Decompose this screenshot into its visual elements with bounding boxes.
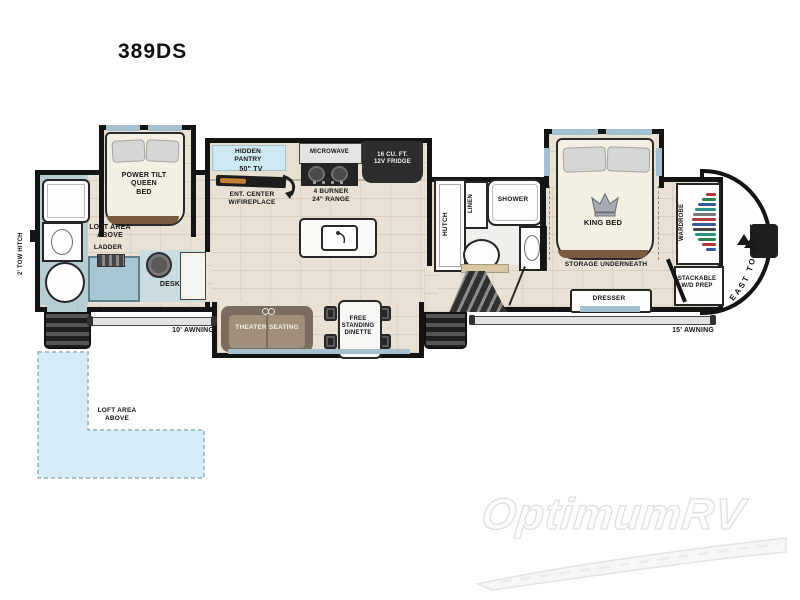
king-slide-window-top-left — [552, 129, 598, 135]
mid-entry-steps — [424, 312, 467, 349]
slide-travel-dash-right — [658, 186, 659, 260]
ladder-graphic — [97, 254, 125, 267]
king-bed-foot — [558, 250, 648, 258]
king-slide-window-top-right — [606, 129, 652, 135]
microwave-label: MICROWAVE — [300, 149, 359, 156]
road-swoosh — [470, 532, 792, 592]
faucet-icon — [334, 229, 350, 245]
svg-text:EAST TO WEST: EAST TO WEST — [728, 221, 759, 303]
front-sink-bowl — [51, 229, 73, 255]
burner-right — [331, 166, 348, 182]
wardrobe-label: WARDROBE — [679, 192, 686, 252]
range-cooktop — [301, 163, 358, 186]
living-slide-window — [228, 349, 410, 354]
queen-bed-label: POWER TILT QUEEN BED — [112, 172, 176, 197]
hutch-cabinet — [434, 179, 466, 272]
range-knobs — [313, 181, 347, 184]
pantry-label: HIDDEN PANTRY — [214, 148, 282, 164]
desk-surface — [180, 252, 206, 300]
queen-pillow-right — [145, 139, 179, 163]
rear-awning-label: 15' AWNING — [660, 327, 714, 335]
slide-travel-dash-left — [549, 186, 550, 260]
dinette-chair-1 — [324, 306, 337, 321]
front-shower — [42, 179, 90, 223]
ladder-label: LADDER — [86, 244, 130, 252]
desk-label: DESK — [150, 281, 190, 289]
loft-above-label: LOFT AREA ABOVE — [84, 224, 136, 241]
page-title: 389DS — [118, 40, 187, 64]
front-awning-label: 10' AWNING — [160, 327, 214, 335]
hutch-label: HUTCH — [442, 196, 450, 252]
cupholder-icon-2 — [268, 308, 275, 315]
front-entry-steps — [44, 312, 91, 349]
queen-bed-foot — [107, 216, 179, 224]
dresser-window — [580, 306, 640, 312]
hitch-nub — [30, 230, 39, 242]
loft-footprint-label: LOFT AREA ABOVE — [92, 407, 142, 423]
front-awning-bar — [88, 317, 216, 326]
wd-prep-label: STACKABLE W/D PREP — [675, 276, 719, 290]
brand-logo-text: EAST TO WEST — [728, 221, 759, 303]
front-slide-wall-right — [191, 175, 196, 237]
fridge-label: 16 CU. FT. 12V FRIDGE — [363, 152, 422, 166]
front-toilet — [45, 262, 85, 303]
front-slide-window — [106, 125, 140, 131]
watermark-text: OptimumRV — [479, 490, 747, 540]
range-label: 4 BURNER 24" RANGE — [303, 188, 359, 204]
shower-label: SHOWER — [489, 196, 537, 204]
watermark: OptimumRV — [470, 488, 792, 592]
bath-bedroom-wall — [540, 177, 546, 270]
burner-left — [308, 166, 325, 182]
front-sink-vanity — [42, 222, 83, 262]
king-slide-window-side-left — [544, 148, 550, 176]
wardrobe-clothes — [690, 186, 716, 258]
king-pillow-right — [607, 146, 651, 172]
storage-label: STORAGE UNDERNEATH — [558, 261, 654, 269]
dresser-label: DRESSER — [572, 295, 646, 303]
tow-hitch-label: 2' TOW HITCH — [18, 215, 25, 293]
theater-label: THEATER SEATING — [223, 324, 311, 332]
king-bed — [556, 138, 654, 260]
crown-icon — [589, 192, 621, 218]
front-slide-window-2 — [148, 125, 182, 131]
king-pillow-left — [563, 146, 607, 172]
rear-awning-bar — [470, 316, 715, 325]
floorplan-canvas: 389DS EAST TO WEST — [0, 0, 800, 600]
fireplace-flame — [220, 178, 246, 184]
linen-label: LINEN — [468, 188, 475, 220]
kitchen-island — [299, 218, 377, 258]
ent-center-label: ENT. CENTER W/FIREPLACE — [220, 191, 284, 207]
queen-pillow-left — [111, 139, 145, 163]
tv-label: 50" TV — [225, 166, 277, 174]
desk-chair — [146, 252, 172, 278]
dinette-label: FREE STANDING DINETTE — [339, 316, 377, 338]
dinette-chair-3 — [324, 334, 337, 349]
king-bed-label: KING BED — [570, 218, 636, 227]
mid-sink-bowl — [524, 235, 540, 261]
king-slide-window-side-right — [656, 148, 662, 176]
